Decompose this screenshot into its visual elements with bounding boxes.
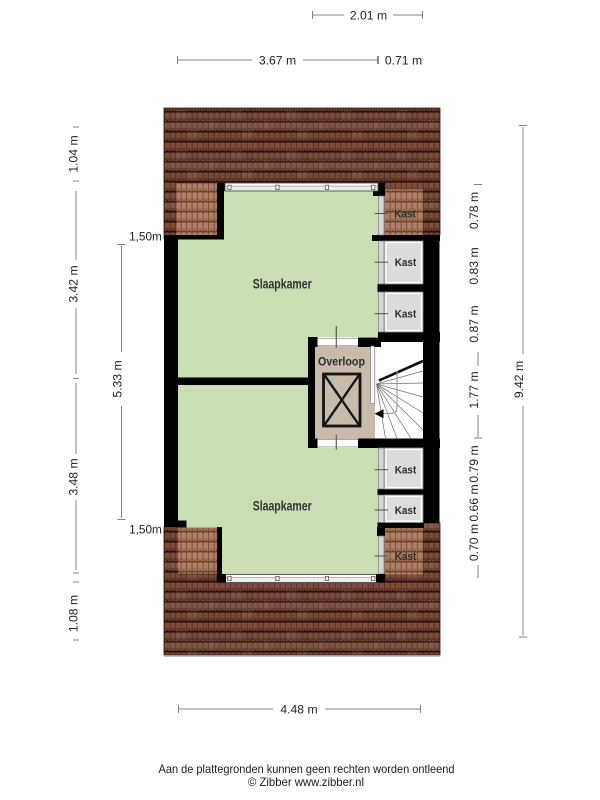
svg-text:0.83 m: 0.83 m: [467, 247, 481, 284]
svg-text:4.48 m: 4.48 m: [280, 703, 317, 717]
svg-text:3.42 m: 3.42 m: [67, 265, 81, 302]
svg-text:© Zibber www.zibber.nl: © Zibber www.zibber.nl: [248, 776, 364, 789]
svg-text:Slaapkamer: Slaapkamer: [253, 498, 313, 513]
svg-text:Kast: Kast: [395, 309, 417, 321]
svg-text:0.87 m: 0.87 m: [467, 305, 481, 342]
svg-text:5.33 m: 5.33 m: [111, 360, 125, 397]
svg-text:Overloop: Overloop: [318, 354, 365, 368]
svg-text:0.71 m: 0.71 m: [385, 54, 422, 68]
svg-text:2.01 m: 2.01 m: [350, 9, 387, 23]
svg-text:1.04 m: 1.04 m: [67, 135, 81, 172]
svg-text:0.79 m: 0.79 m: [467, 445, 481, 482]
svg-text:Kast: Kast: [395, 257, 417, 269]
svg-text:0.70 m: 0.70 m: [467, 524, 481, 561]
svg-text:1.77 m: 1.77 m: [467, 371, 481, 408]
svg-text:Kast: Kast: [394, 208, 416, 220]
svg-text:1.08 m: 1.08 m: [67, 595, 81, 632]
svg-text:Slaapkamer: Slaapkamer: [253, 276, 313, 291]
svg-text:0.78 m: 0.78 m: [467, 192, 481, 229]
svg-text:1,50m: 1,50m: [129, 523, 162, 537]
svg-text:0.66 m: 0.66 m: [467, 484, 481, 521]
svg-text:Kast: Kast: [395, 465, 417, 477]
svg-text:3.67 m: 3.67 m: [259, 54, 296, 68]
svg-text:9.42 m: 9.42 m: [512, 361, 526, 398]
svg-text:Kast: Kast: [395, 551, 417, 563]
svg-text:Kast: Kast: [395, 505, 417, 517]
svg-text:3.48 m: 3.48 m: [67, 458, 81, 495]
svg-text:1,50m: 1,50m: [129, 230, 162, 244]
svg-text:Aan de plattegronden kunnen ge: Aan de plattegronden kunnen geen rechten…: [159, 763, 455, 776]
